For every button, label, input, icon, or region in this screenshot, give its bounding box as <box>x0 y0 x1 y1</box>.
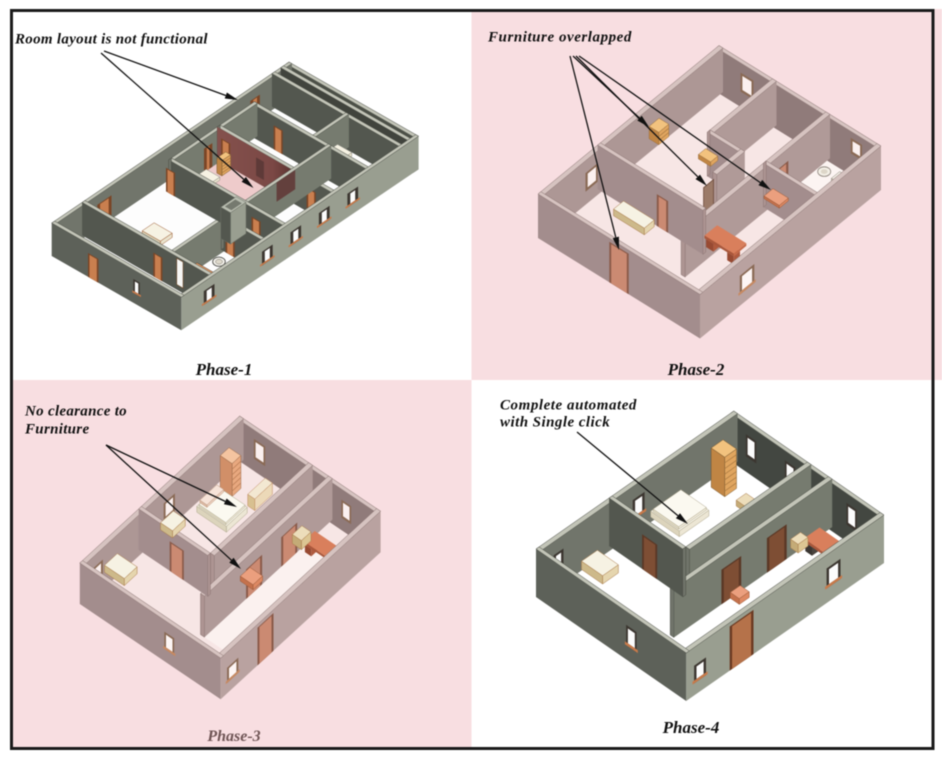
svg-text:Furniture overlapped: Furniture overlapped <box>487 30 632 46</box>
svg-text:Room layout is not functional: Room layout is not functional <box>14 32 208 48</box>
svg-text:Complete automated: Complete automated <box>500 398 637 414</box>
svg-text:Phase-2: Phase-2 <box>667 360 725 379</box>
svg-text:Phase-1: Phase-1 <box>195 360 253 379</box>
svg-text:with Single click: with Single click <box>500 415 610 431</box>
svg-text:No clearance to: No clearance to <box>24 404 127 420</box>
svg-text:Phase-3: Phase-3 <box>206 728 260 745</box>
svg-text:Furniture: Furniture <box>24 422 89 438</box>
svg-text:Phase-4: Phase-4 <box>662 718 720 737</box>
